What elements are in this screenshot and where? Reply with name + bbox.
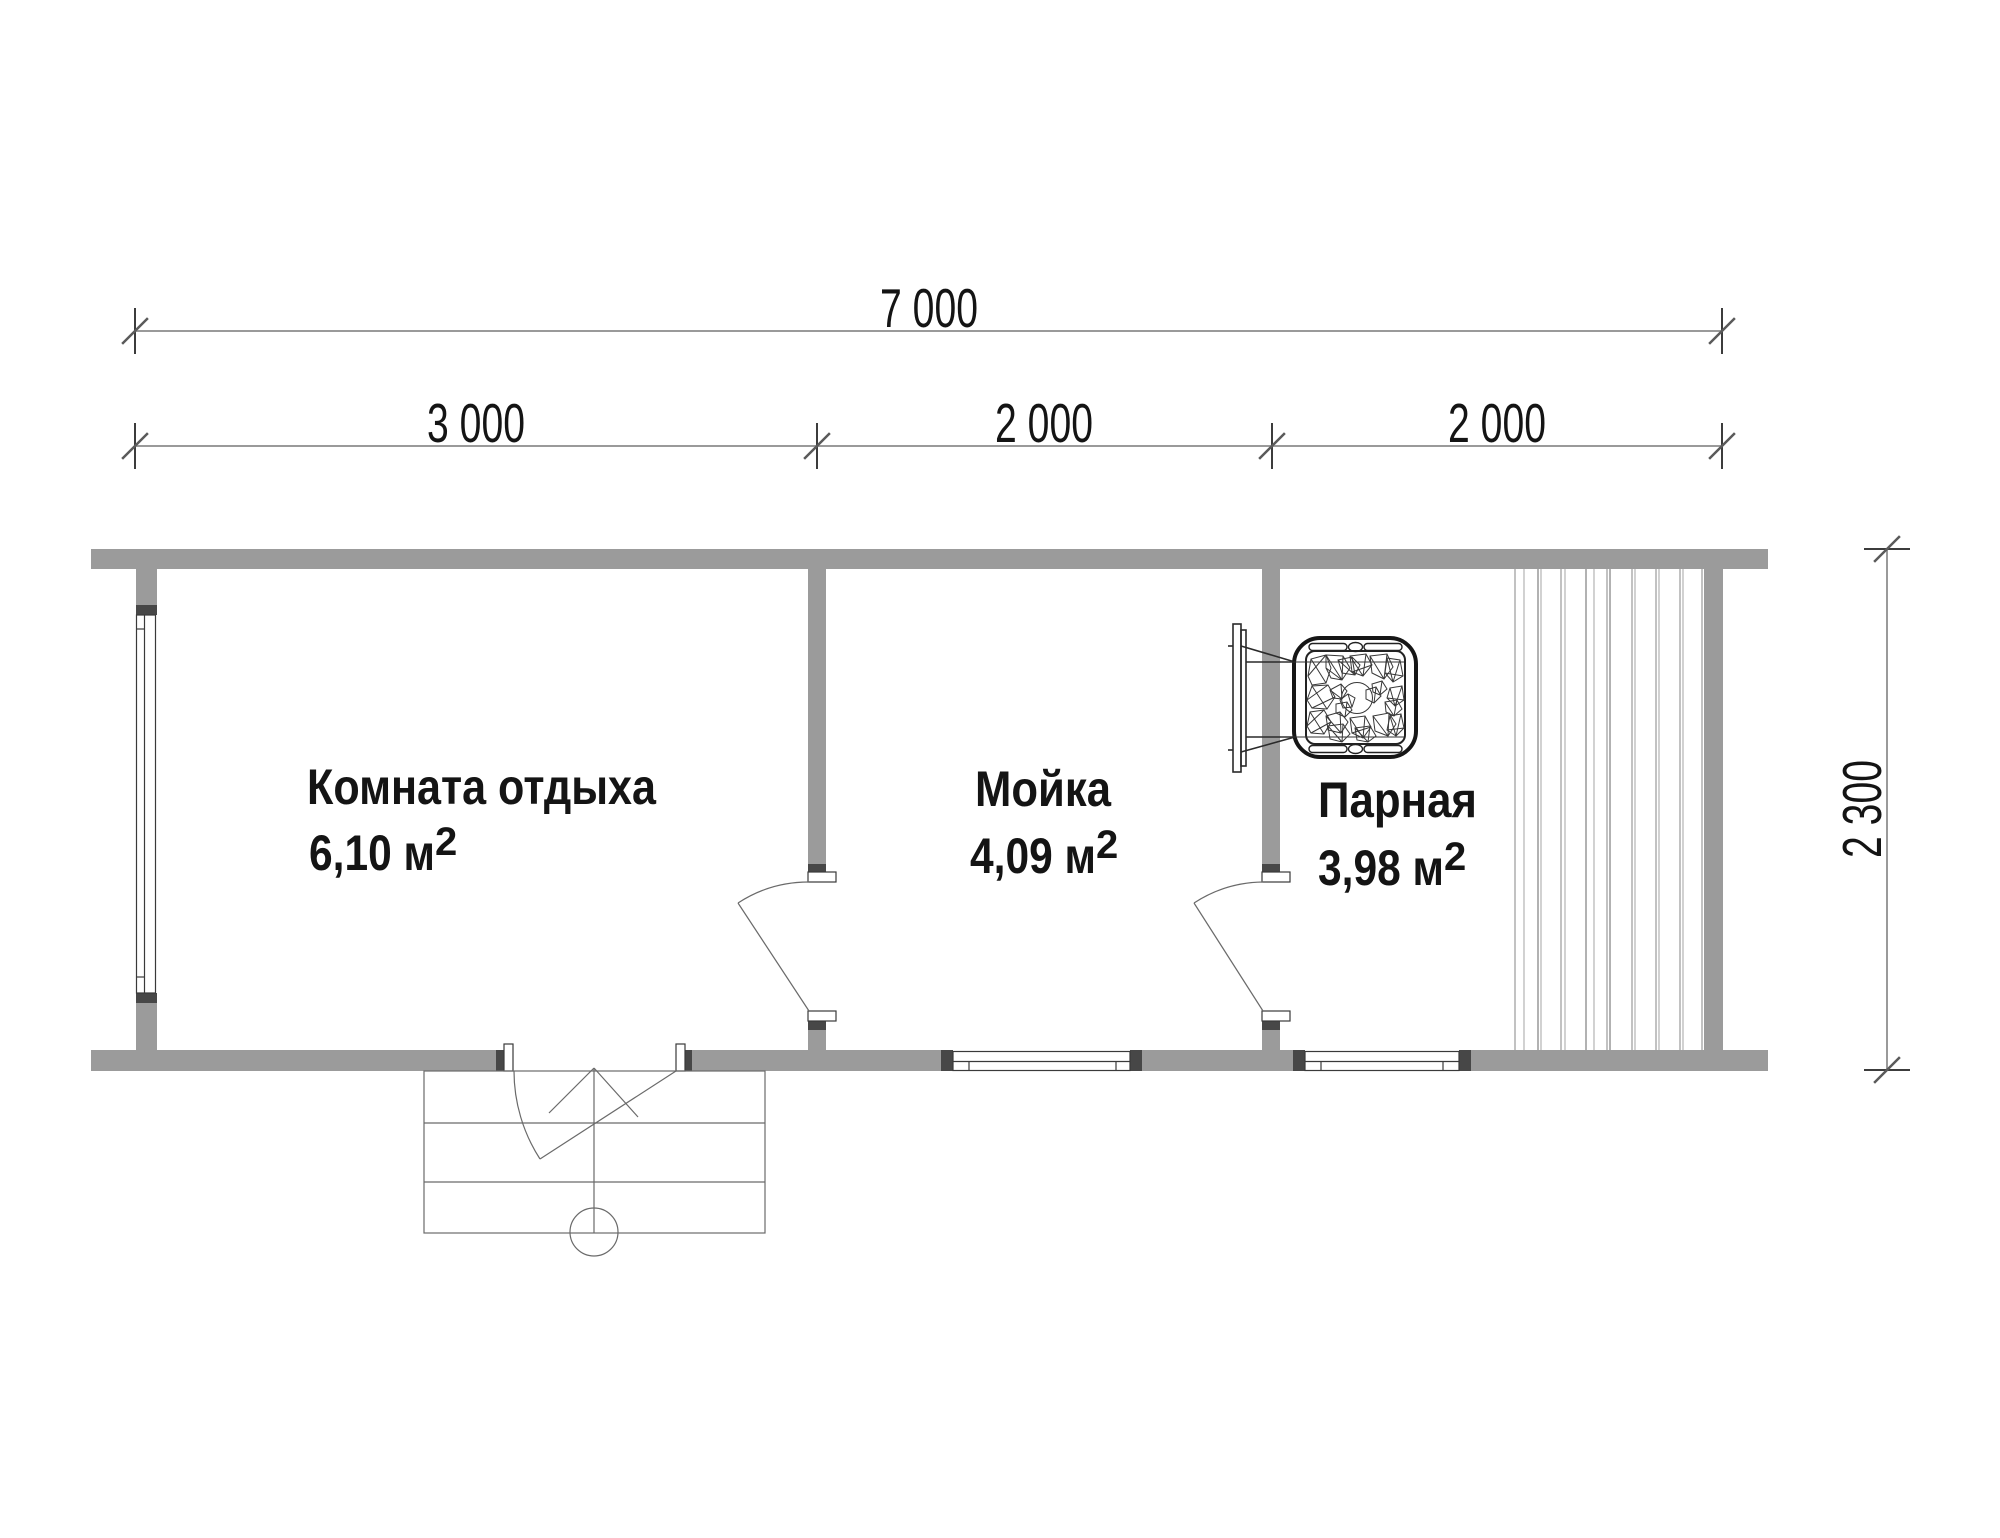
svg-text:Мойка: Мойка [975, 761, 1112, 817]
svg-text:3 000: 3 000 [427, 392, 525, 454]
svg-text:2 300: 2 300 [1831, 760, 1893, 858]
svg-text:Парная: Парная [1318, 772, 1477, 828]
svg-text:7 000: 7 000 [880, 277, 978, 339]
svg-text:Комната отдыха: Комната отдыха [307, 759, 657, 815]
svg-text:2 000: 2 000 [1448, 392, 1546, 454]
svg-text:2 000: 2 000 [995, 392, 1093, 454]
